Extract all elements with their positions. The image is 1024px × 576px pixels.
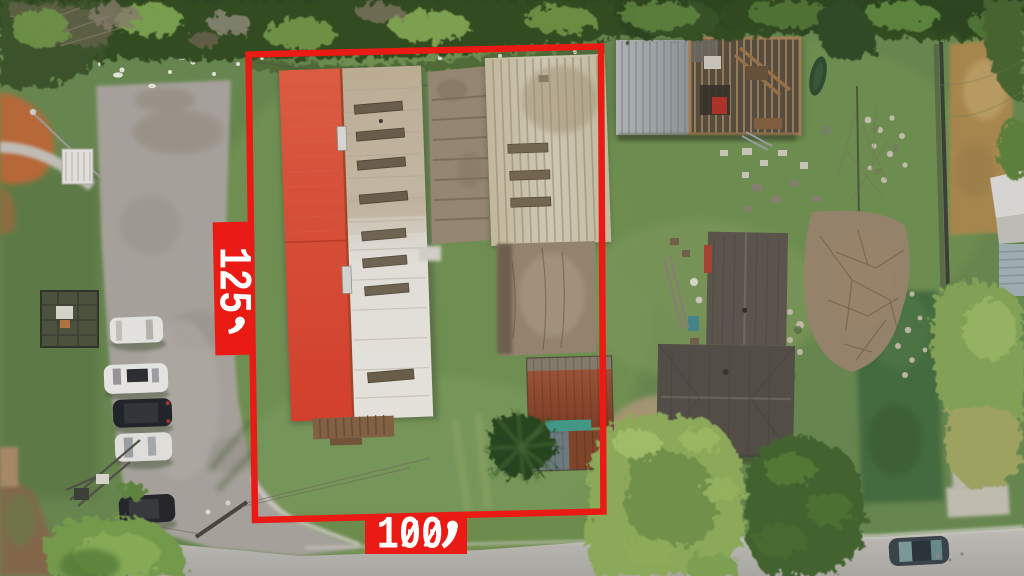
- svg-text:125: 125: [206, 247, 259, 314]
